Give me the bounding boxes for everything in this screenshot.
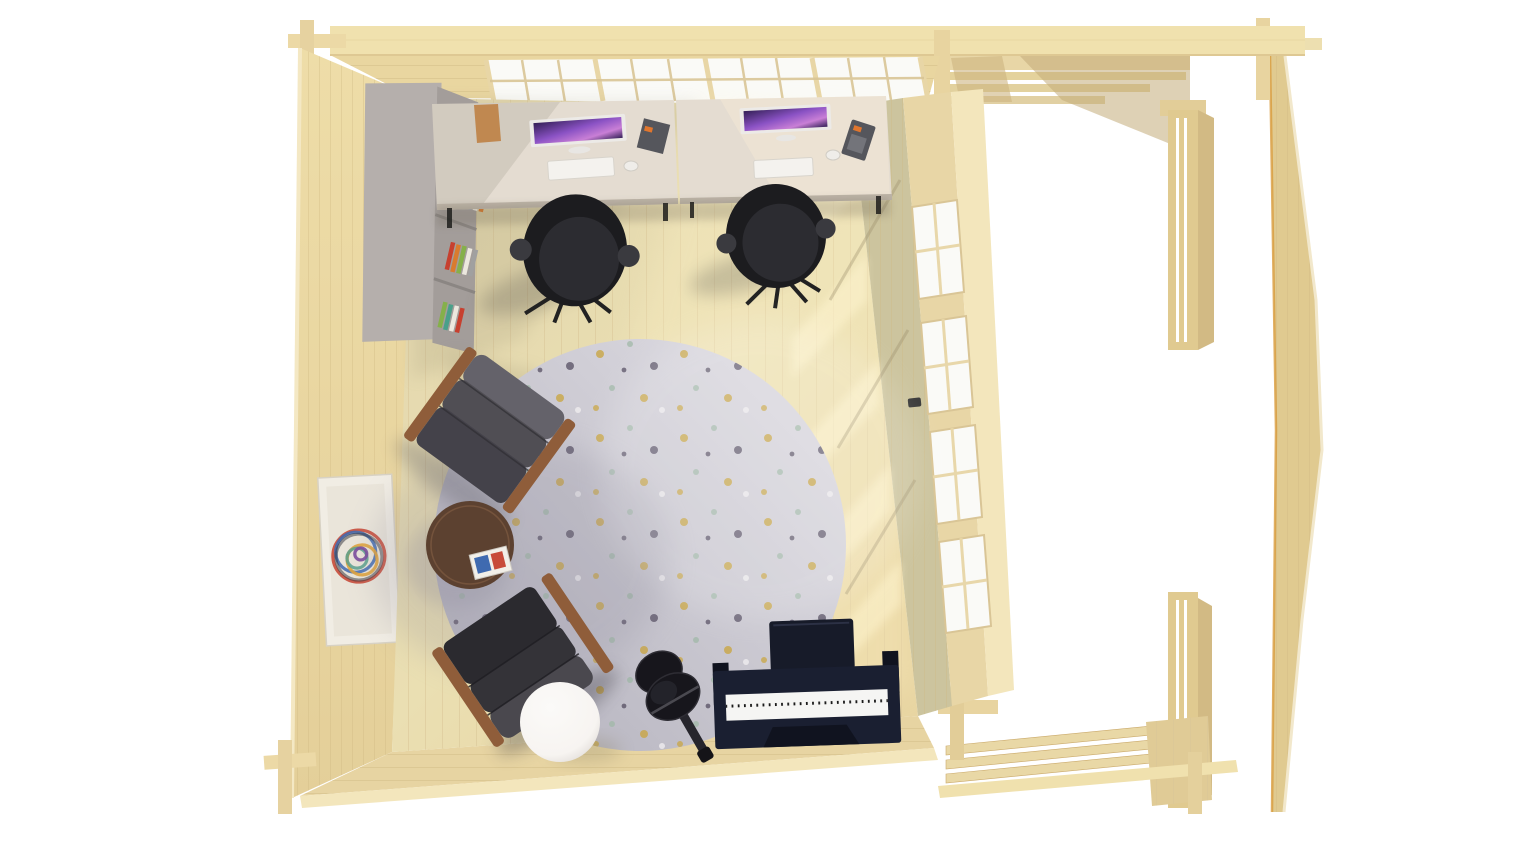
mouse-1 bbox=[624, 161, 638, 171]
office-room bbox=[264, 48, 1014, 814]
cabin-topdown-render bbox=[0, 0, 1536, 864]
desk-workstations bbox=[432, 96, 892, 228]
top-window-band bbox=[486, 57, 928, 102]
door-handle bbox=[908, 397, 922, 407]
beam-cross-joint bbox=[278, 740, 292, 814]
render-canvas bbox=[0, 0, 1536, 864]
desk-organizer-box bbox=[474, 104, 501, 143]
mouse-2 bbox=[826, 150, 840, 160]
piano-pedal-board bbox=[763, 724, 860, 747]
pergola-corner-post-upper bbox=[1160, 100, 1214, 350]
beam-cross-joint bbox=[1188, 752, 1202, 814]
keyboard-1 bbox=[547, 157, 614, 181]
joist-end-platform-grain bbox=[1146, 716, 1212, 806]
rug-sunlit-area bbox=[600, 320, 920, 620]
piano-bench bbox=[769, 619, 855, 672]
beam-cross-joint bbox=[288, 34, 346, 48]
gable-end-wall bbox=[1270, 56, 1322, 812]
keyboard-2 bbox=[754, 157, 814, 178]
